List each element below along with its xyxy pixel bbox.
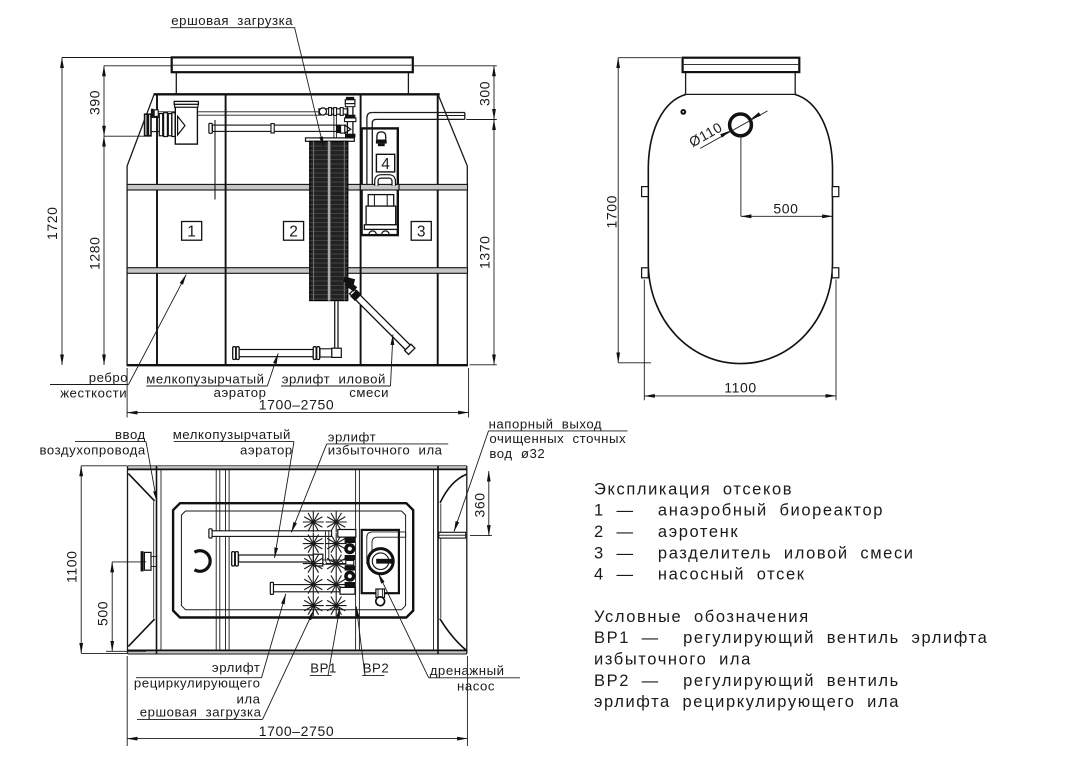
svg-text:500: 500	[773, 200, 798, 216]
svg-text:3: 3	[417, 224, 426, 241]
svg-text:2: 2	[289, 224, 298, 241]
svg-text:очищенных сточных: очищенных сточных	[489, 431, 626, 446]
svg-text:1100: 1100	[724, 380, 757, 396]
svg-text:Условные обозначения: Условные обозначения	[594, 608, 810, 626]
svg-text:300: 300	[477, 81, 493, 106]
svg-text:2 — аэротенк: 2 — аэротенк	[594, 523, 739, 541]
svg-text:вод ø32: вод ø32	[489, 446, 545, 461]
svg-text:1700–2750: 1700–2750	[259, 397, 334, 413]
svg-text:Экспликация отсеков: Экспликация отсеков	[594, 480, 793, 498]
svg-text:390: 390	[87, 90, 103, 115]
svg-text:напорный выход: напорный выход	[489, 417, 603, 432]
svg-text:ребро: ребро	[89, 370, 129, 385]
svg-text:эрлифт: эрлифт	[212, 660, 261, 675]
svg-text:жесткости: жесткости	[60, 385, 127, 400]
svg-text:1280: 1280	[87, 236, 103, 270]
svg-text:4: 4	[381, 156, 390, 173]
svg-text:ВР2 — регулирующий вентиль: ВР2 — регулирующий вентиль	[594, 672, 900, 690]
svg-text:мелкопузырчатый: мелкопузырчатый	[173, 427, 291, 442]
svg-text:смеси: смеси	[349, 385, 389, 400]
svg-text:избыточного ила: избыточного ила	[594, 651, 752, 669]
svg-text:1: 1	[187, 224, 196, 241]
svg-text:аэратор: аэратор	[214, 385, 267, 400]
svg-text:ввод: ввод	[115, 427, 146, 442]
svg-text:дренажный: дренажный	[430, 663, 505, 678]
svg-text:3 — разделитель иловой смеси: 3 — разделитель иловой смеси	[594, 544, 915, 562]
svg-text:1700–2750: 1700–2750	[259, 723, 334, 739]
svg-text:1 — анаэробный биореактор: 1 — анаэробный биореактор	[594, 502, 884, 520]
svg-text:избыточного ила: избыточного ила	[328, 443, 443, 458]
svg-text:ершовая загрузка: ершовая загрузка	[140, 705, 262, 720]
svg-text:насос: насос	[457, 679, 495, 694]
svg-text:аэратор: аэратор	[240, 442, 293, 457]
svg-text:ершовая загрузка: ершовая загрузка	[171, 13, 293, 28]
svg-text:ВР1: ВР1	[310, 661, 337, 676]
svg-text:4 — насосный отсек: 4 — насосный отсек	[594, 566, 806, 584]
svg-text:воздухопровода: воздухопровода	[39, 442, 145, 457]
svg-text:ВР2: ВР2	[363, 661, 390, 676]
svg-text:500: 500	[95, 601, 111, 626]
svg-text:1720: 1720	[44, 206, 60, 240]
svg-text:360: 360	[471, 492, 487, 517]
svg-text:1370: 1370	[477, 235, 493, 269]
svg-text:ВР1 — регулирующий вентиль эр: ВР1 — регулирующий вентиль эрлифта	[594, 629, 988, 647]
svg-text:1700: 1700	[604, 195, 620, 229]
svg-text:1100: 1100	[64, 550, 80, 583]
svg-text:эрлифта рециркулирующего ила: эрлифта рециркулирующего ила	[594, 693, 900, 711]
